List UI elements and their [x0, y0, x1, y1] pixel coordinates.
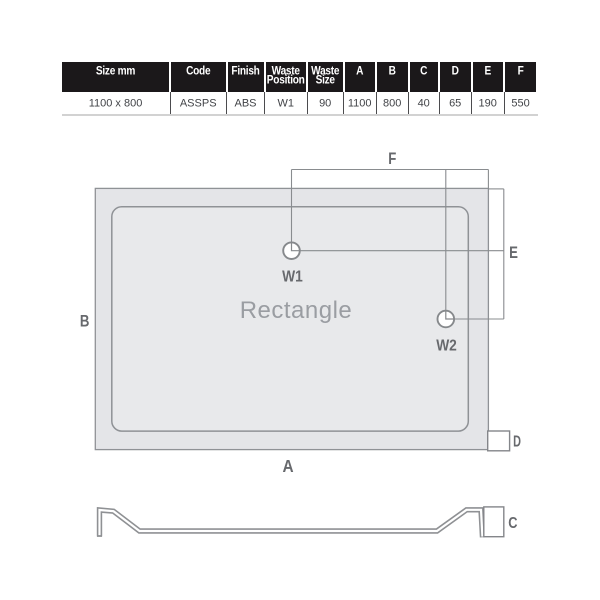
svg-text:D: D	[513, 432, 521, 450]
svg-text:B: B	[389, 65, 396, 78]
svg-text:Size: Size	[316, 74, 335, 87]
svg-text:800: 800	[383, 98, 401, 110]
svg-text:C: C	[508, 515, 518, 533]
svg-text:C: C	[420, 65, 427, 78]
svg-text:F: F	[388, 150, 396, 169]
svg-text:1100: 1100	[348, 98, 372, 110]
svg-text:Finish: Finish	[231, 65, 259, 78]
svg-text:W1: W1	[277, 98, 294, 110]
svg-text:65: 65	[449, 98, 461, 110]
svg-text:D: D	[452, 65, 459, 78]
svg-text:Position: Position	[267, 74, 305, 87]
svg-text:F: F	[518, 65, 525, 78]
svg-text:W1: W1	[282, 268, 303, 286]
svg-text:190: 190	[479, 98, 497, 110]
svg-text:40: 40	[418, 98, 430, 110]
svg-text:E: E	[484, 65, 491, 78]
svg-text:E: E	[509, 244, 518, 263]
svg-text:Size mm: Size mm	[96, 65, 135, 78]
svg-text:W2: W2	[436, 337, 457, 355]
svg-text:1100 x 800: 1100 x 800	[89, 98, 143, 110]
svg-text:B: B	[80, 312, 90, 331]
svg-text:Code: Code	[186, 65, 210, 78]
svg-text:90: 90	[319, 98, 331, 110]
svg-text:ABS: ABS	[234, 98, 256, 110]
svg-text:ASSPS: ASSPS	[180, 98, 217, 110]
svg-text:Rectangle: Rectangle	[240, 297, 353, 324]
svg-text:A: A	[356, 65, 363, 78]
svg-text:550: 550	[511, 98, 529, 110]
svg-text:A: A	[283, 457, 294, 476]
